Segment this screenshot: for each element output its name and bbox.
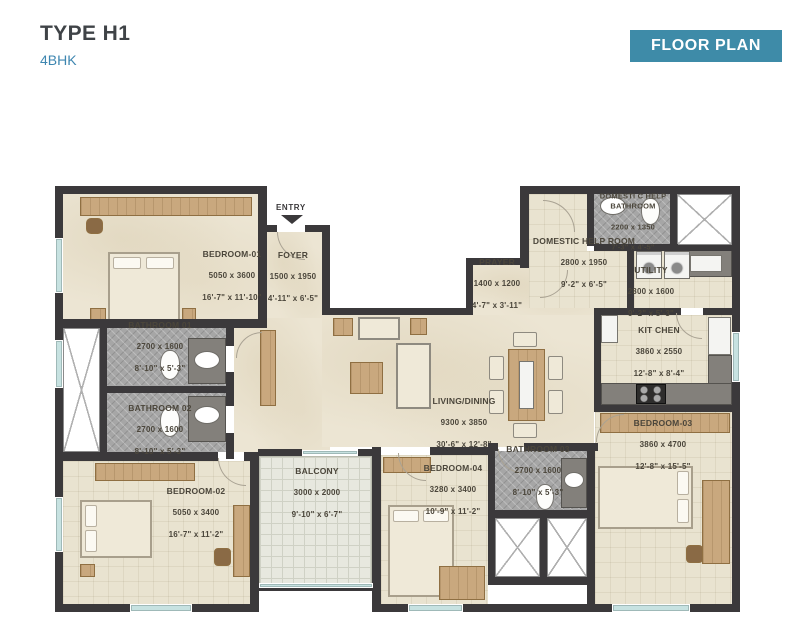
wardrobe xyxy=(95,463,195,481)
refrigerator xyxy=(708,317,731,355)
window xyxy=(408,604,463,612)
wardrobe xyxy=(80,197,252,216)
sink xyxy=(194,351,220,369)
side-table xyxy=(333,318,353,336)
wall-segment xyxy=(594,244,678,251)
wall-segment xyxy=(226,433,234,459)
stove xyxy=(636,384,666,404)
dining-chair xyxy=(489,356,504,380)
wall-segment xyxy=(594,308,601,407)
sliding-door xyxy=(302,450,358,455)
wall-segment xyxy=(703,308,732,315)
toilet xyxy=(160,350,180,380)
entry-arrow-icon xyxy=(281,215,303,224)
wall-segment xyxy=(594,308,681,315)
wall-segment xyxy=(627,248,634,308)
window xyxy=(130,604,192,612)
wall-segment xyxy=(226,319,234,346)
wall-segment xyxy=(672,245,734,251)
kitchen-cabinet xyxy=(601,315,618,343)
utility-sink xyxy=(690,255,722,272)
wall-segment xyxy=(587,193,594,246)
wall-segment xyxy=(258,186,267,328)
shaft-bottom-2 xyxy=(547,518,587,577)
toilet xyxy=(160,407,180,437)
toilet xyxy=(641,198,660,225)
wall-segment xyxy=(540,516,547,579)
wall-segment xyxy=(322,308,470,315)
wall-segment xyxy=(258,449,302,456)
sink xyxy=(600,197,626,215)
window xyxy=(55,497,63,552)
window xyxy=(55,340,63,388)
nightstand xyxy=(80,564,95,577)
wall-segment xyxy=(466,258,473,315)
wall-segment xyxy=(226,372,234,406)
dining-chair xyxy=(513,332,537,347)
pillow xyxy=(113,257,141,269)
dining-chair xyxy=(548,390,563,414)
wall-segment xyxy=(250,452,259,612)
shaft-bottom-1 xyxy=(495,518,540,577)
wall-segment xyxy=(594,405,740,412)
chair xyxy=(214,548,231,566)
coffee-table xyxy=(350,362,383,394)
washing-machine xyxy=(636,251,662,279)
side-table xyxy=(410,318,427,335)
wall-segment xyxy=(520,186,740,194)
window xyxy=(612,604,690,612)
balcony-rail-glass xyxy=(259,583,373,588)
main-sofa xyxy=(396,343,431,409)
wall-segment xyxy=(587,443,595,612)
wall-segment xyxy=(520,186,529,268)
window xyxy=(732,332,740,382)
dining-chair xyxy=(513,423,537,438)
desk xyxy=(439,566,485,600)
pillow xyxy=(85,530,97,552)
sink xyxy=(194,406,220,424)
pillow xyxy=(393,510,419,522)
wall-segment xyxy=(267,225,277,232)
cabinet xyxy=(260,330,276,406)
entry-label: ENTRY xyxy=(276,203,306,212)
desk xyxy=(702,480,730,564)
wall-segment xyxy=(466,258,528,265)
wall-segment xyxy=(55,186,267,194)
kitchen-counter xyxy=(601,383,732,405)
wall-segment xyxy=(670,186,677,247)
table-runner xyxy=(519,361,534,409)
floor-plan-drawing: ENTRY BEDROOM-01 5050 x 3600 16'-7" x 11… xyxy=(0,0,800,628)
wall-segment xyxy=(100,386,233,393)
shaft-left xyxy=(63,328,100,452)
dining-chair xyxy=(548,356,563,380)
sink xyxy=(564,472,584,488)
chair xyxy=(686,545,703,563)
window xyxy=(55,238,63,293)
desk xyxy=(233,505,250,577)
pillow xyxy=(677,499,689,523)
wall-segment xyxy=(488,577,595,585)
wall-segment xyxy=(55,452,218,461)
pillow xyxy=(677,471,689,495)
armchair xyxy=(86,218,103,234)
washing-machine xyxy=(664,251,690,279)
loveseat-sofa xyxy=(358,317,400,340)
pillow xyxy=(423,510,449,522)
pillow xyxy=(85,505,97,527)
floor-plan-page: { "header": { "title": "TYPE H1", "subti… xyxy=(0,0,800,628)
toilet xyxy=(536,484,554,510)
shaft-top-right xyxy=(677,194,732,245)
wall-segment xyxy=(430,447,488,455)
balcony-rail xyxy=(259,588,373,591)
wall-segment xyxy=(322,225,330,315)
pillow xyxy=(146,257,174,269)
dining-chair xyxy=(489,390,504,414)
wall-segment xyxy=(55,319,267,328)
floor-balcony xyxy=(259,456,372,584)
wall-segment xyxy=(372,447,381,612)
